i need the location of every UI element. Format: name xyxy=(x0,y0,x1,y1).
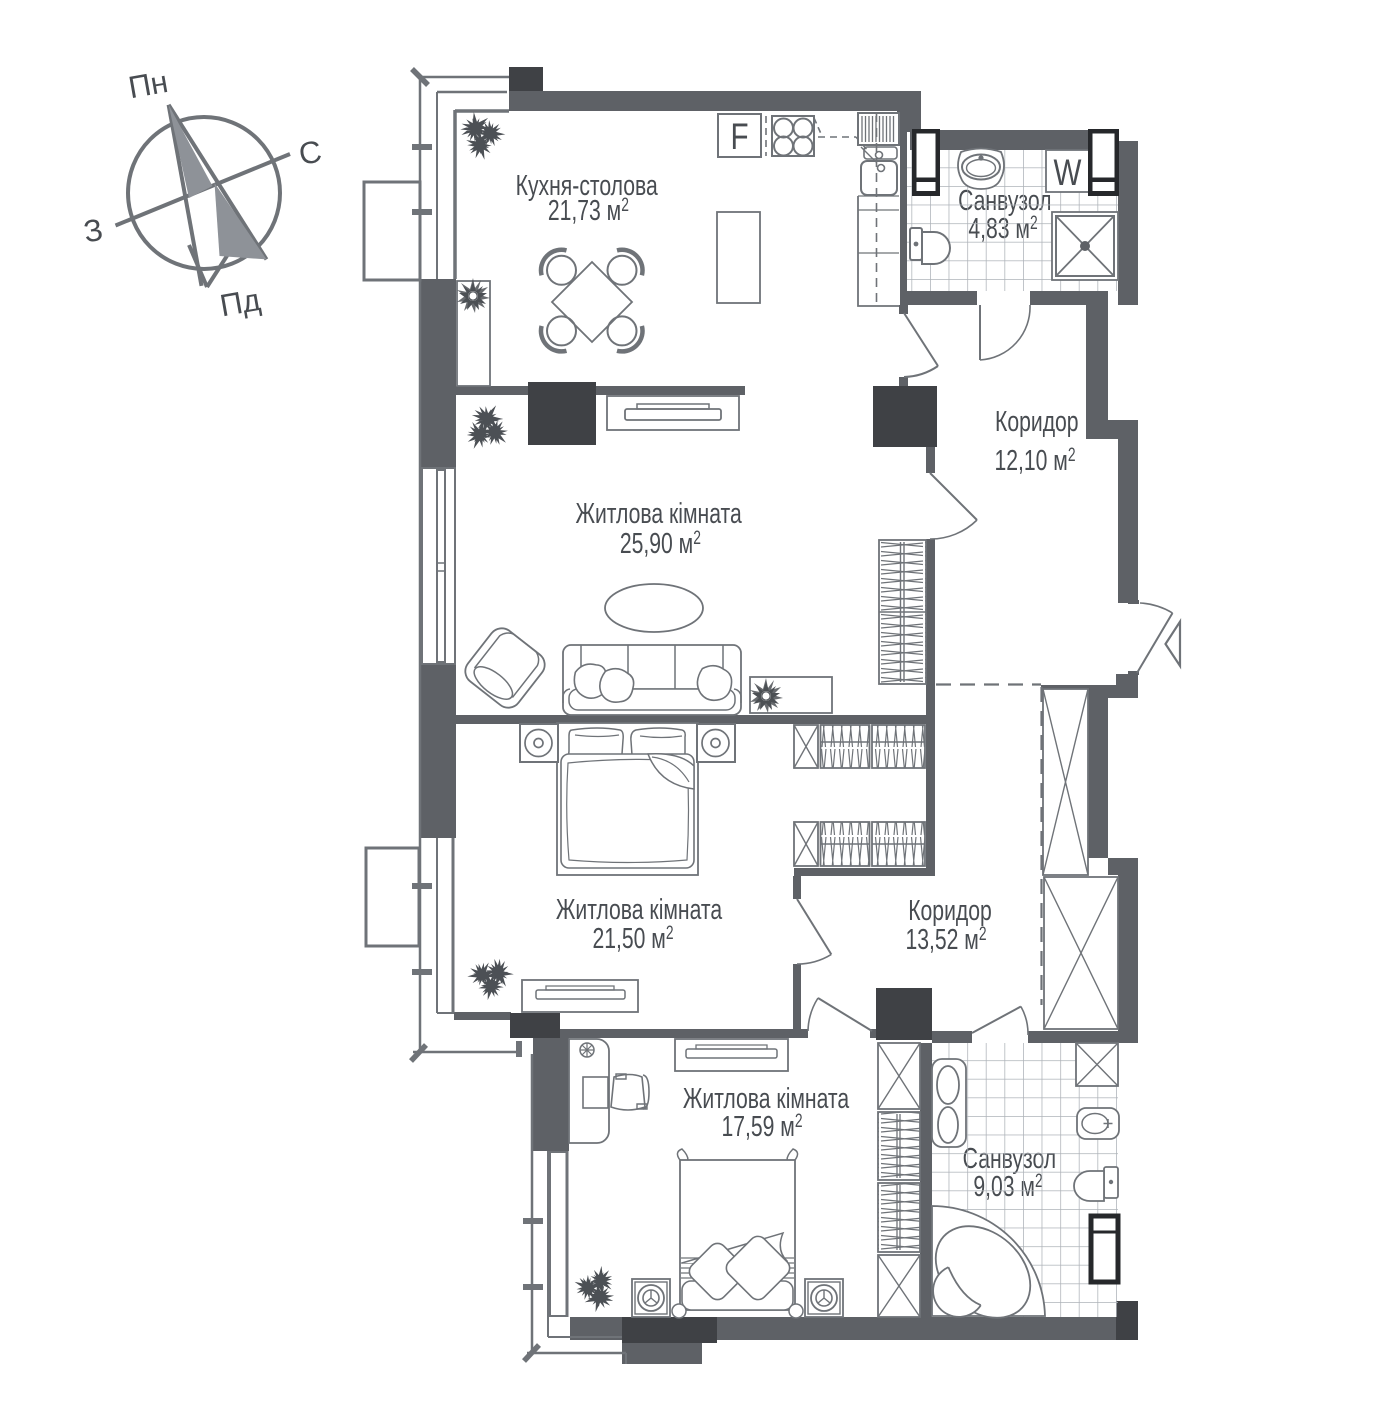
svg-text:12,10 м2: 12,10 м2 xyxy=(994,444,1075,477)
svg-text:13,52 м2: 13,52 м2 xyxy=(905,923,986,956)
svg-text:21,50 м2: 21,50 м2 xyxy=(592,922,673,955)
svg-text:F: F xyxy=(730,117,748,158)
svg-text:Пн: Пн xyxy=(126,64,171,105)
svg-text:21,73 м2: 21,73 м2 xyxy=(548,194,629,227)
svg-text:W: W xyxy=(1054,153,1082,194)
svg-text:Житлова кімната: Житлова кімната xyxy=(556,894,723,926)
svg-text:17,59 м2: 17,59 м2 xyxy=(721,1110,802,1143)
svg-text:Житлова кімната: Житлова кімната xyxy=(575,498,742,530)
svg-text:25,90 м2: 25,90 м2 xyxy=(620,527,701,560)
svg-text:Пд: Пд xyxy=(217,282,263,323)
svg-text:Коридор: Коридор xyxy=(995,406,1079,438)
